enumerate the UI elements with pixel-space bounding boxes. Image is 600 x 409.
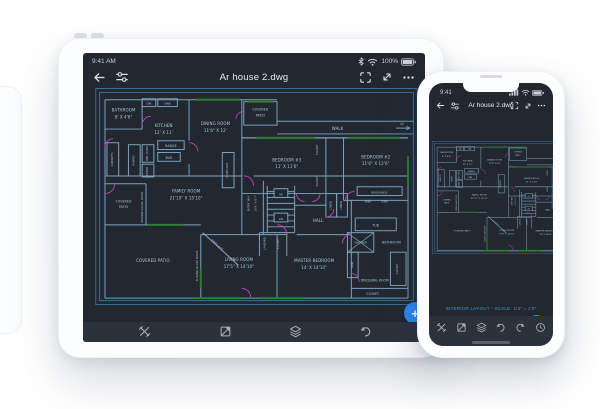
- layout-caption: INTERIOR LAYOUT - SCALE: 1/4" = 1'0": [429, 306, 553, 311]
- measure-cross-icon: [436, 322, 447, 333]
- phone-toolbar: [429, 316, 553, 338]
- wifi-icon: [367, 58, 378, 66]
- adjust-settings-button[interactable]: [115, 70, 129, 84]
- floorplan-drawing: [95, 88, 418, 305]
- back-arrow-icon: [436, 101, 445, 110]
- phone-home-area: [429, 338, 553, 346]
- redo-button[interactable]: [515, 322, 526, 333]
- tablet-toolbar: [83, 322, 425, 342]
- bluetooth-icon: [358, 57, 364, 66]
- phone-status-time: 9:41: [440, 90, 452, 96]
- annotate-icon: [219, 325, 232, 338]
- tablet-screen: 9:41 AM 100% Ar house 2.dwg +: [83, 53, 425, 342]
- phone-speaker: [480, 75, 502, 78]
- phone-device: 9:41 Ar house 2.dwg INTERIOR LAYOUT - SC…: [417, 71, 565, 358]
- sliders-icon: [115, 70, 129, 84]
- phone-screen: 9:41 Ar house 2.dwg INTERIOR LAYOUT - SC…: [429, 83, 553, 346]
- background-card: [0, 86, 22, 334]
- undo-button[interactable]: [495, 322, 506, 333]
- expand-icon: [524, 102, 532, 110]
- expand-icon: [381, 71, 393, 83]
- tablet-status-time: 9:41 AM: [92, 58, 116, 65]
- back-button[interactable]: [93, 71, 106, 84]
- more-options-button[interactable]: [402, 71, 415, 84]
- undo-button[interactable]: [359, 325, 372, 338]
- phone-notch: [463, 83, 519, 92]
- layers-button[interactable]: [476, 322, 487, 333]
- measure-tool-button[interactable]: [138, 325, 151, 338]
- measure-tool-button[interactable]: [436, 322, 447, 333]
- phone-title-bar: Ar house 2.dwg: [429, 96, 553, 115]
- fit-to-screen-button[interactable]: [510, 101, 519, 110]
- fit-to-screen-button[interactable]: [359, 71, 372, 84]
- redo-icon: [515, 322, 526, 333]
- ellipsis-icon: [402, 71, 415, 84]
- tablet-drawing-canvas[interactable]: +: [83, 88, 425, 322]
- tablet-title-bar: Ar house 2.dwg: [83, 66, 425, 88]
- tablet-device: 9:41 AM 100% Ar house 2.dwg +: [58, 38, 444, 358]
- more-options-button[interactable]: [537, 101, 546, 110]
- adjust-settings-button[interactable]: [450, 101, 460, 111]
- battery-icon: [401, 58, 416, 66]
- measure-cross-icon: [138, 325, 151, 338]
- sliders-icon: [450, 101, 460, 111]
- home-indicator[interactable]: [472, 341, 510, 344]
- floorplan-drawing: [432, 141, 553, 254]
- layers-icon: [476, 322, 487, 333]
- annotate-tool-button[interactable]: [219, 325, 232, 338]
- fit-corners-icon: [510, 101, 519, 110]
- annotate-icon: [456, 322, 467, 333]
- undo-icon: [495, 322, 506, 333]
- fullscreen-button[interactable]: [524, 102, 532, 110]
- more-tools-button[interactable]: [535, 322, 546, 333]
- layers-button[interactable]: [289, 325, 302, 338]
- phone-drawing-canvas[interactable]: INTERIOR LAYOUT - SCALE: 1/4" = 1'0" +: [429, 115, 553, 316]
- wifi-icon: [521, 89, 530, 96]
- ellipsis-icon: [537, 101, 546, 110]
- fit-corners-icon: [359, 71, 372, 84]
- fullscreen-button[interactable]: [381, 71, 393, 83]
- back-button[interactable]: [436, 101, 445, 110]
- tablet-battery-percent: 100%: [381, 58, 398, 65]
- back-arrow-icon: [93, 71, 106, 84]
- clock-tool-icon: [535, 322, 546, 333]
- undo-icon: [359, 325, 372, 338]
- layers-icon: [289, 325, 302, 338]
- battery-icon: [532, 90, 544, 96]
- annotate-tool-button[interactable]: [456, 322, 467, 333]
